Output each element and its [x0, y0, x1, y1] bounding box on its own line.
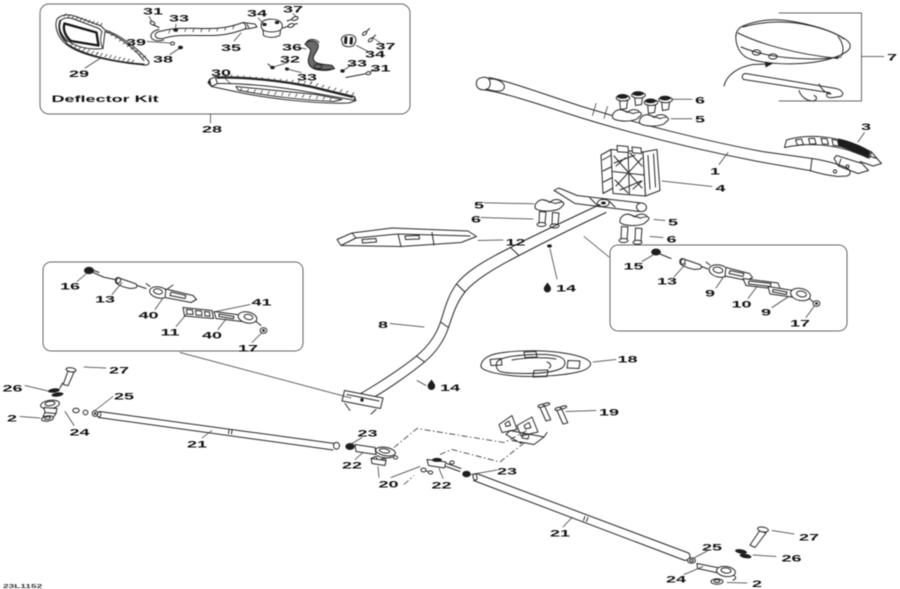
svg-text:4: 4	[715, 184, 725, 195]
svg-text:21: 21	[550, 529, 570, 540]
svg-text:33: 33	[297, 73, 317, 84]
svg-text:17: 17	[238, 344, 258, 355]
svg-text:31: 31	[370, 64, 390, 75]
svg-text:16: 16	[60, 282, 80, 293]
svg-text:6: 6	[666, 235, 676, 246]
svg-text:13: 13	[657, 277, 677, 288]
svg-text:12: 12	[505, 238, 525, 249]
svg-text:34: 34	[247, 9, 267, 20]
svg-text:41: 41	[251, 298, 271, 309]
svg-text:37: 37	[375, 42, 395, 53]
svg-text:33: 33	[347, 59, 367, 70]
svg-text:17: 17	[790, 319, 810, 330]
svg-text:Deflector Kit: Deflector Kit	[52, 94, 159, 105]
svg-text:37: 37	[283, 5, 303, 16]
svg-text:5: 5	[668, 218, 678, 229]
svg-text:25: 25	[702, 543, 722, 554]
svg-text:22: 22	[431, 481, 451, 492]
svg-text:15: 15	[623, 262, 643, 273]
svg-text:31: 31	[143, 7, 163, 18]
svg-text:1: 1	[710, 167, 720, 178]
svg-text:9: 9	[761, 308, 771, 319]
svg-text:8: 8	[378, 320, 388, 331]
svg-text:29: 29	[69, 69, 89, 80]
svg-text:36: 36	[282, 43, 302, 54]
svg-text:19: 19	[599, 408, 619, 419]
svg-text:23: 23	[357, 429, 377, 440]
svg-text:25: 25	[114, 392, 134, 403]
svg-text:26: 26	[781, 554, 801, 565]
svg-text:30: 30	[211, 68, 231, 79]
svg-text:6: 6	[471, 215, 481, 226]
svg-text:11: 11	[160, 328, 179, 339]
svg-text:2: 2	[752, 579, 762, 589]
svg-text:32: 32	[280, 55, 300, 66]
svg-text:5: 5	[474, 201, 484, 212]
svg-text:24: 24	[666, 575, 686, 586]
svg-text:23: 23	[497, 467, 517, 478]
svg-text:27: 27	[799, 533, 819, 544]
svg-text:20: 20	[378, 480, 398, 491]
svg-text:10: 10	[731, 300, 751, 311]
svg-text:5: 5	[695, 115, 705, 126]
svg-text:14: 14	[556, 284, 576, 295]
svg-text:13: 13	[95, 295, 115, 306]
svg-text:35: 35	[221, 43, 241, 54]
svg-text:2: 2	[7, 414, 17, 425]
svg-text:23L1152: 23L1152	[3, 583, 43, 589]
svg-text:22: 22	[342, 461, 362, 472]
svg-text:26: 26	[2, 384, 22, 395]
svg-text:14: 14	[440, 383, 460, 394]
svg-text:9: 9	[705, 289, 715, 300]
svg-text:27: 27	[109, 366, 129, 377]
svg-text:7: 7	[887, 53, 897, 64]
svg-text:38: 38	[153, 55, 173, 66]
svg-text:39: 39	[126, 38, 146, 49]
svg-text:28: 28	[202, 125, 222, 136]
svg-text:21: 21	[187, 440, 207, 451]
svg-text:6: 6	[695, 96, 705, 107]
svg-text:33: 33	[169, 14, 189, 25]
svg-text:3: 3	[861, 122, 871, 133]
svg-text:40: 40	[138, 311, 158, 322]
svg-text:40: 40	[202, 331, 222, 342]
svg-text:24: 24	[69, 428, 89, 439]
svg-text:18: 18	[617, 355, 637, 366]
